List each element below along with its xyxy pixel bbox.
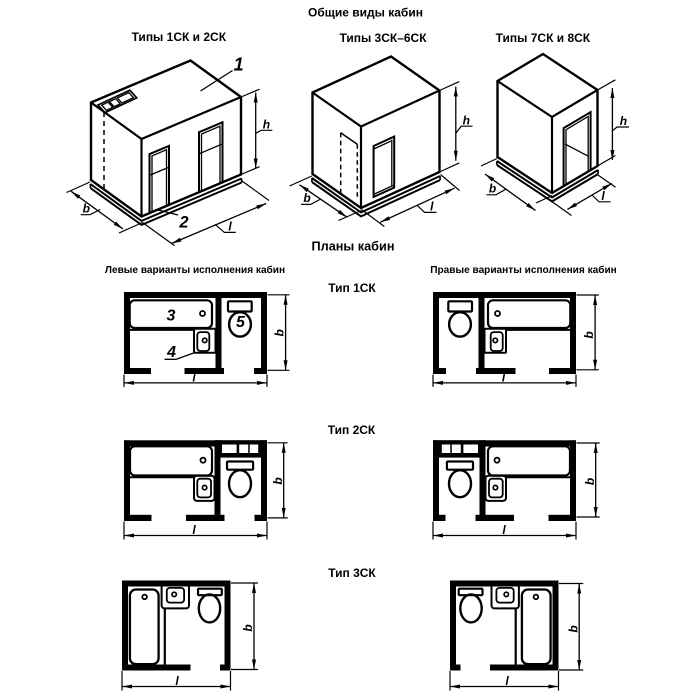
svg-text:Типы 7СК и 8СК: Типы 7СК и 8СК (496, 31, 591, 45)
svg-text:h: h (263, 117, 270, 131)
svg-text:Общие виды кабин: Общие виды кабин (308, 6, 423, 20)
svg-text:Тип 2СК: Тип 2СК (328, 423, 376, 437)
svg-text:Левые варианты исполнения каби: Левые варианты исполнения кабин (105, 264, 285, 276)
svg-text:Правые варианты исполнения каб: Правые варианты исполнения кабин (430, 264, 617, 276)
svg-text:b: b (303, 191, 310, 205)
svg-text:h: h (463, 113, 470, 127)
svg-text:2: 2 (178, 214, 188, 232)
svg-text:Типы 1СК и 2СК: Типы 1СК и 2СК (132, 30, 227, 44)
svg-text:b: b (583, 478, 597, 485)
svg-text:b: b (271, 477, 285, 484)
svg-text:b: b (566, 625, 580, 632)
svg-text:b: b (273, 329, 287, 336)
svg-text:h: h (620, 114, 627, 128)
svg-text:4: 4 (166, 344, 176, 361)
svg-text:Типы 3СК–6СК: Типы 3СК–6СК (339, 31, 427, 45)
svg-text:b: b (582, 331, 596, 338)
svg-text:1: 1 (234, 54, 244, 74)
svg-text:Планы кабин: Планы кабин (312, 240, 395, 254)
svg-text:b: b (241, 624, 255, 631)
svg-text:3: 3 (167, 308, 176, 325)
svg-text:b: b (83, 202, 90, 216)
svg-text:Тип 1СК: Тип 1СК (328, 281, 376, 295)
svg-text:Тип 3СК: Тип 3СК (328, 566, 376, 580)
svg-text:5: 5 (236, 314, 246, 331)
svg-text:b: b (489, 182, 496, 196)
